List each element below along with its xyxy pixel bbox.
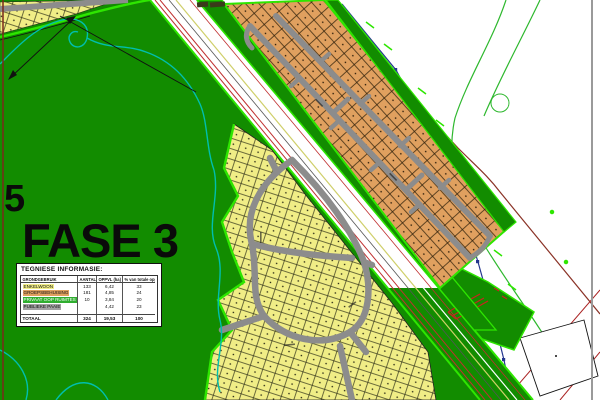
total-label: TOTAAL: [21, 314, 77, 322]
table-grid: GRONDGEBRUIK AANTAL OPPVL (ha) % van tot…: [20, 275, 158, 323]
row-groepsbehuising-label: GROEPSBEHUISING: [21, 290, 77, 297]
publieke-paaie-swatch: PUBLIEKE PAAIE: [23, 304, 62, 310]
privaat-oop-ruimtes-swatch: PRIVAAT OOP RUIMTES: [23, 297, 77, 303]
col-header-land-use: GRONDGEBRUIK: [21, 276, 77, 283]
row-enkelwoon-area: 6,42: [96, 283, 122, 290]
col-header-count: AANTAL: [77, 276, 96, 283]
row-privaat-oop-ruimtes-count: 10: [77, 297, 96, 304]
phase-title: FASE 3: [22, 214, 178, 267]
table-title: TEGNIESE INFORMASIE:: [21, 266, 158, 273]
row-privaat-oop-ruimtes-area: 3,84: [96, 297, 122, 304]
row-enkelwoon-pct: 33: [122, 283, 155, 290]
enkelwoon-swatch: ENKELWOON: [23, 284, 55, 290]
row-groepsbehuising-area: 4,85: [96, 290, 122, 297]
total-area: 19,53: [96, 314, 122, 322]
row-publieke-paaie-area: 4,42: [96, 303, 122, 310]
col-header-area: OPPVL (ha): [96, 276, 122, 283]
row-privaat-oop-ruimtes-label: PRIVAAT OOP RUIMTES: [21, 297, 77, 304]
row-enkelwoon-label: ENKELWOON: [21, 283, 77, 290]
plan-viewer: 5 FASE 3 TEGNIESE INFORMASIE: GRONDGEBRU…: [0, 0, 600, 400]
total-count: 324: [77, 314, 96, 322]
row-publieke-paaie-label: PUBLIEKE PAAIE: [21, 303, 77, 310]
row-publieke-paaie-count: [77, 303, 96, 310]
row-groepsbehuising-pct: 24: [122, 290, 155, 297]
col-header-pct: % van totale oppvl.: [122, 276, 155, 283]
row-privaat-oop-ruimtes-pct: 20: [122, 297, 155, 304]
groepsbehuising-swatch: GROEPSBEHUISING: [23, 290, 70, 296]
map-canvas[interactable]: 5 FASE 3: [0, 0, 600, 400]
row-publieke-paaie-pct: 23: [122, 303, 155, 310]
row-groepsbehuising-count: 181: [77, 290, 96, 297]
row-enkelwoon-count: 133: [77, 283, 96, 290]
technical-info-table: TEGNIESE INFORMASIE: GRONDGEBRUIK AANTAL…: [16, 263, 162, 327]
total-pct: 100: [122, 314, 155, 322]
